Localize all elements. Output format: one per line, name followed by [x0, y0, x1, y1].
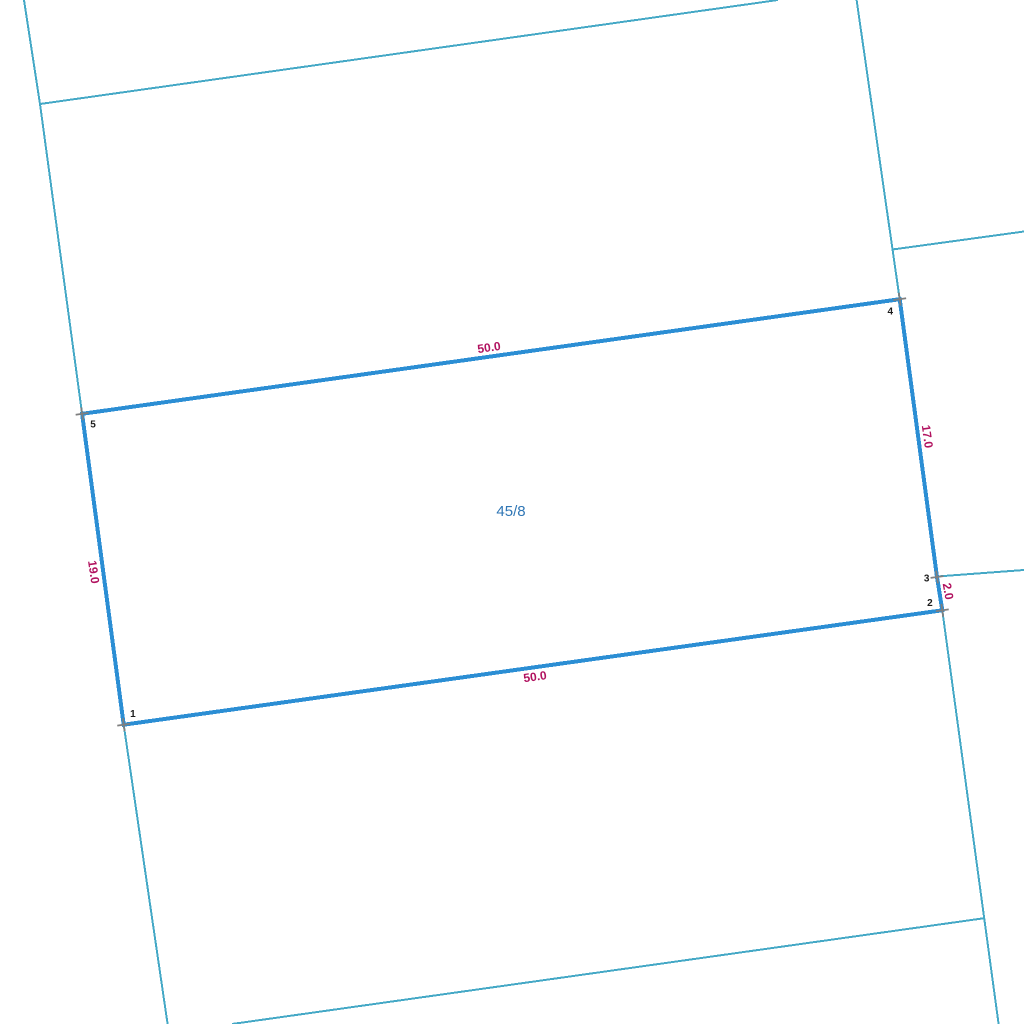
svg-text:1: 1 — [130, 709, 136, 720]
svg-text:45/8: 45/8 — [496, 503, 525, 520]
svg-text:3: 3 — [924, 574, 930, 585]
svg-text:2.0: 2.0 — [940, 582, 957, 601]
svg-text:2: 2 — [927, 598, 933, 609]
svg-text:5: 5 — [90, 420, 96, 431]
svg-text:4: 4 — [888, 307, 894, 318]
